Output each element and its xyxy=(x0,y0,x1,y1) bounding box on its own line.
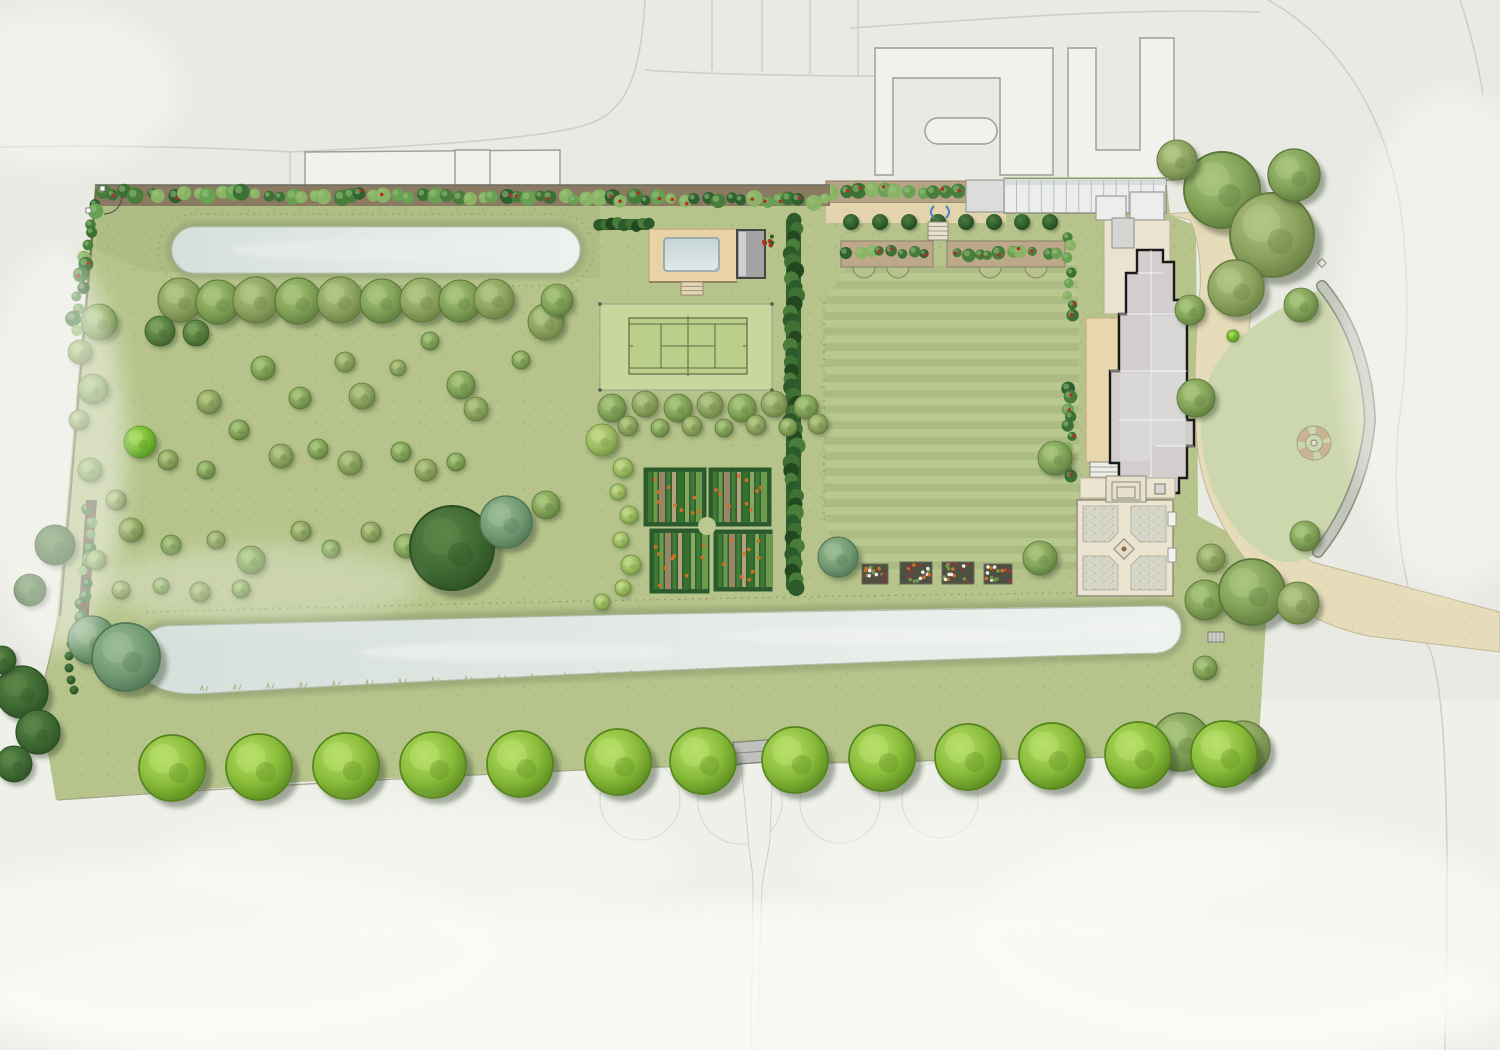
garden-masterplan-drawing xyxy=(0,0,1500,1050)
masterplan-stage xyxy=(0,0,1500,1050)
tennis-court xyxy=(598,302,774,392)
upper-pond xyxy=(158,214,594,286)
kitchen-garden xyxy=(645,469,772,592)
bench xyxy=(1208,632,1224,642)
garden-shed xyxy=(966,180,1004,212)
pool-house xyxy=(737,230,765,278)
formal-striped-lawn xyxy=(824,262,1080,574)
walled-garden xyxy=(1077,476,1176,596)
terrace-steps xyxy=(928,222,948,240)
